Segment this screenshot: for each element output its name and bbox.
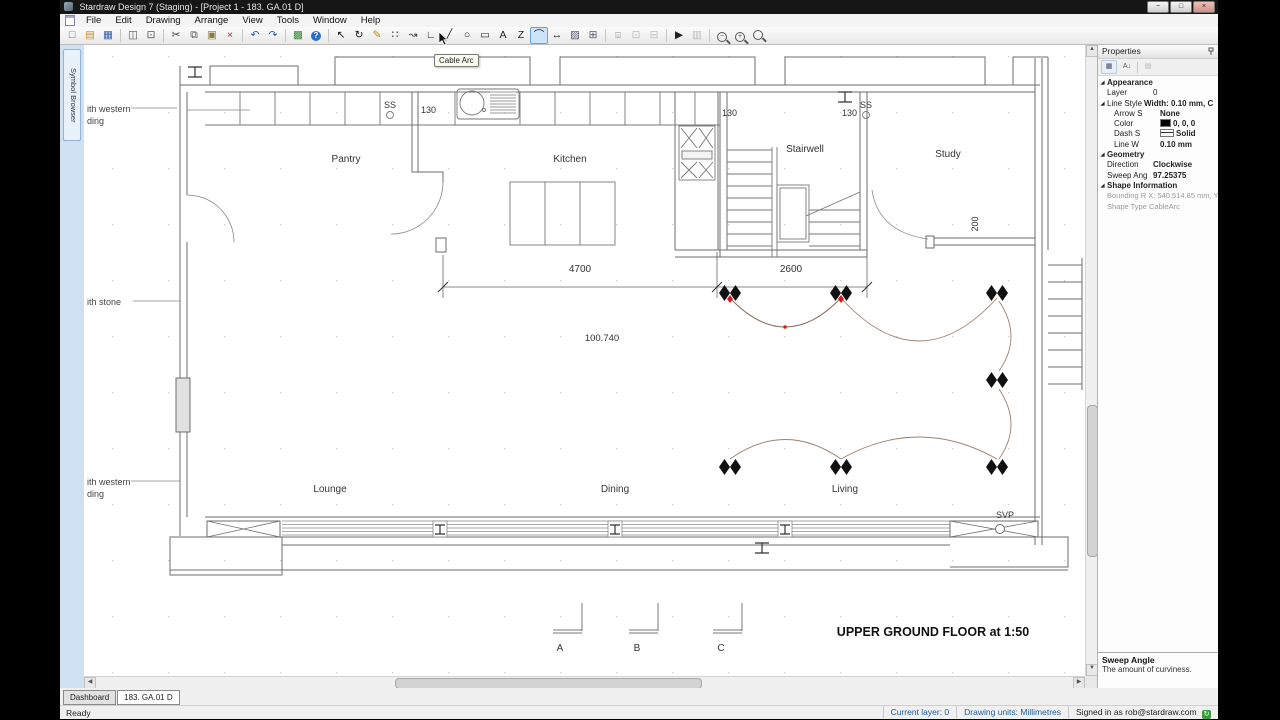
symbol-browser-panel: Symbol Browser (60, 45, 85, 688)
property-row-direction[interactable]: Direction Clockwise (1098, 160, 1218, 170)
toolbar-separator (666, 29, 667, 42)
main-toolbar: □▤▦◫⊡✂⧉▣×↶↷▩?↖↻✎∷↝∟╱○▭AZ⌒↔▨⊞⧈⊡⊟▶▥−+ (60, 27, 1218, 45)
open-icon[interactable]: ▤ (81, 27, 99, 44)
window-title: Stardraw Design 7 (Staging) - [Project 1… (80, 2, 304, 12)
save-icon[interactable]: ▦ (99, 27, 117, 44)
toolbar-separator (605, 29, 606, 42)
property-row-arrow-style[interactable]: Arrow S None (1098, 109, 1218, 119)
copy-icon[interactable]: ⧉ (185, 27, 203, 44)
status-drawing-units[interactable]: Drawing units: Millimetres (956, 706, 1068, 719)
curve-select-icon[interactable]: ↝ (404, 27, 422, 44)
toolbar-separator (163, 29, 164, 42)
properties-grid: ◢ Appearance Layer 0 ◢ Line Style Width:… (1098, 76, 1218, 652)
floor-plan: 4700 2600 100.740 130 130 130 200 Pantry… (84, 45, 1085, 676)
new-icon[interactable]: □ (63, 27, 81, 44)
properties-title: Properties (1102, 46, 1141, 56)
section-b: B (634, 643, 641, 654)
print-icon[interactable]: ◫ (124, 27, 142, 44)
dim-2600: 2600 (780, 264, 803, 275)
property-label: Layer (1098, 88, 1153, 98)
property-label: Direction (1098, 160, 1153, 170)
zoom-window-icon[interactable] (749, 27, 767, 44)
drawing-canvas[interactable]: 4700 2600 100.740 130 130 130 200 Pantry… (84, 45, 1085, 676)
help-icon[interactable]: ? (307, 27, 325, 44)
dash-style-swatch[interactable] (1160, 129, 1174, 137)
app-icon (64, 2, 73, 11)
property-label: Dash S (1098, 129, 1160, 139)
dimension-icon[interactable]: ↔ (548, 27, 566, 44)
collapse-triangle-icon[interactable]: ◢ (1098, 150, 1107, 160)
symbol-grid-icon[interactable]: ⊞ (584, 27, 602, 44)
room-dining: Dining (601, 484, 629, 495)
menu-view[interactable]: View (235, 14, 269, 27)
close-button[interactable]: × (1193, 1, 1215, 13)
status-current-layer[interactable]: Current layer: 0 (883, 706, 957, 719)
format-painter-icon[interactable]: ✎ (368, 27, 386, 44)
note-3-line-2: ding (87, 489, 104, 499)
paste-icon[interactable]: ▣ (203, 27, 221, 44)
property-description-box: Sweep Angle The amount of curviness. (1098, 652, 1218, 688)
signed-in-text: Signed in as rob@stardraw.com (1076, 707, 1197, 717)
document-tab-strip: Dashboard 183. GA.01 D (60, 688, 1218, 705)
cut-icon[interactable]: ✂ (167, 27, 185, 44)
sort-alphabetical-icon[interactable]: A↓ (1119, 60, 1135, 74)
category-label: Shape Information (1107, 181, 1177, 191)
property-label: Line W (1098, 140, 1160, 150)
property-value[interactable]: Solid (1176, 129, 1196, 138)
property-value[interactable]: 0.10 mm (1160, 140, 1218, 150)
toolbar-separator (242, 29, 243, 42)
menu-file[interactable]: File (79, 14, 108, 27)
property-value[interactable]: None (1160, 109, 1218, 119)
toolbar-separator (709, 29, 710, 42)
room-lounge: Lounge (313, 484, 347, 495)
room-stairwell: Stairwell (786, 144, 824, 155)
document-icon[interactable] (65, 15, 75, 26)
title-bar: Stardraw Design 7 (Staging) - [Project 1… (60, 0, 1218, 14)
collapse-triangle-icon[interactable]: ◢ (1098, 181, 1107, 191)
status-signed-in[interactable]: Signed in as rob@stardraw.com ↻ (1068, 706, 1218, 719)
room-pantry: Pantry (332, 154, 361, 165)
property-description-text: The amount of curviness. (1102, 665, 1214, 674)
property-value[interactable]: 0 (1153, 88, 1218, 98)
pin-icon[interactable] (1207, 47, 1215, 56)
ss-label-left: SS (384, 100, 396, 110)
property-pages-icon[interactable]: ▤ (1140, 60, 1156, 74)
property-row-color[interactable]: Color 0, 0, 0 (1098, 119, 1218, 129)
property-label: Sweep Ang (1098, 171, 1153, 181)
sync-status-icon: ↻ (1202, 710, 1211, 719)
zoom-out-icon[interactable]: − (713, 27, 731, 44)
redo-icon[interactable]: ↷ (264, 27, 282, 44)
zoom-in-icon[interactable]: + (731, 27, 749, 44)
scrollbar-corner (1085, 676, 1097, 688)
section-a: A (557, 643, 564, 654)
room-kitchen: Kitchen (553, 154, 586, 165)
plan-title: UPPER GROUND FLOOR at 1:50 (837, 625, 1029, 639)
menu-drawing[interactable]: Drawing (139, 14, 188, 27)
collapse-triangle-icon[interactable]: ◢ (1098, 78, 1107, 88)
note-1-line-2: ding (87, 116, 104, 126)
toolbar-separator (120, 29, 121, 42)
select-icon[interactable]: ↖ (332, 27, 350, 44)
property-label: Line Style (1107, 99, 1144, 109)
property-row-sweep-angle[interactable]: Sweep Ang 97.25375 (1098, 171, 1218, 181)
collapse-triangle-icon[interactable]: ◢ (1098, 99, 1107, 109)
svp-label: SVP (996, 510, 1014, 520)
delete-icon[interactable]: × (221, 27, 239, 44)
cable-arc-icon[interactable]: ⌒ (530, 27, 548, 44)
room-study: Study (935, 149, 961, 160)
grid-dots (84, 45, 1085, 676)
image-icon[interactable]: ▨ (566, 27, 584, 44)
dim-130-b: 130 (722, 108, 737, 118)
status-bar: Ready Current layer: 0 Drawing units: Mi… (60, 705, 1218, 719)
menu-window[interactable]: Window (306, 14, 354, 27)
pick-icon[interactable]: ▶ (670, 27, 688, 44)
property-row-dash-style[interactable]: Dash S Solid (1098, 129, 1218, 139)
undo-icon[interactable]: ↶ (246, 27, 264, 44)
text-icon[interactable]: A (494, 27, 512, 44)
note-2-line-1: ith stone (87, 297, 121, 307)
status-ready: Ready (60, 708, 883, 718)
property-value[interactable]: Width: 0.10 mm, C (1144, 99, 1218, 109)
color-swatch[interactable] (1160, 119, 1171, 127)
ss-label-right: SS (860, 100, 872, 110)
level-label: 100.740 (585, 333, 619, 344)
room-living: Living (832, 484, 858, 495)
toolbar-separator (328, 29, 329, 42)
arc-midpoint-handle[interactable] (783, 325, 787, 329)
property-label: Arrow S (1098, 109, 1160, 119)
section-c: C (717, 643, 724, 654)
dim-130-c: 130 (842, 108, 857, 118)
shape-bounding-info: Bounding R X: 540,514.85 mm, Y: (1098, 191, 1218, 201)
node-edit-icon[interactable]: ∷ (386, 27, 404, 44)
menu-bar-items: FileEditDrawingArrangeViewToolsWindowHel… (79, 14, 387, 27)
category-geometry[interactable]: ◢ Geometry (1098, 150, 1218, 160)
rotate-icon[interactable]: ↻ (350, 27, 368, 44)
property-row-line-style[interactable]: ◢ Line Style Width: 0.10 mm, C (1098, 99, 1218, 109)
symbol-browser-tab[interactable]: Symbol Browser (63, 49, 81, 141)
dim-200: 200 (970, 216, 980, 231)
category-appearance[interactable]: ◢ Appearance (1098, 78, 1218, 88)
category-label: Geometry (1107, 150, 1144, 160)
tab-dashboard[interactable]: Dashboard (63, 690, 116, 705)
menu-tools[interactable]: Tools (270, 14, 306, 27)
polyline-icon[interactable]: Z (512, 27, 530, 44)
dim-130-a: 130 (421, 105, 436, 115)
categorized-view-icon[interactable]: ▦ (1101, 60, 1117, 74)
ellipse-icon[interactable]: ○ (458, 27, 476, 44)
menu-help[interactable]: Help (354, 14, 388, 27)
note-3-line-1: ith western (87, 477, 131, 487)
note-1-line-1: ith western (87, 104, 131, 114)
category-shape-information[interactable]: ◢ Shape Information (1098, 181, 1218, 191)
maximize-button[interactable]: □ (1170, 1, 1192, 13)
tab-drawing[interactable]: 183. GA.01 D (117, 690, 179, 705)
rectangle-icon[interactable]: ▭ (476, 27, 494, 44)
shape-type-info: Shape Type CableArc (1098, 202, 1218, 212)
menu-edit[interactable]: Edit (108, 14, 138, 27)
menu-arrange[interactable]: Arrange (188, 14, 236, 27)
insert-picture-icon[interactable]: ▩ (289, 27, 307, 44)
properties-toolbar: ▦ A↓ ▤ (1098, 59, 1218, 76)
app-window: Stardraw Design 7 (Staging) - [Project 1… (60, 0, 1218, 719)
property-value[interactable]: Clockwise (1153, 160, 1218, 170)
toolbar-separator (285, 29, 286, 42)
regroup-icon[interactable]: ⊟ (645, 27, 663, 44)
property-label: Color (1098, 119, 1160, 129)
minimize-button[interactable]: − (1147, 1, 1169, 13)
property-row-layer[interactable]: Layer 0 (1098, 88, 1218, 98)
property-value[interactable]: 0, 0, 0 (1173, 119, 1195, 128)
group-icon[interactable]: ⧈ (609, 27, 627, 44)
cable-arc-tooltip: Cable Arc (434, 54, 479, 67)
property-description-title: Sweep Angle (1102, 655, 1214, 665)
property-value[interactable]: 97.25375 (1153, 171, 1218, 181)
ungroup-icon[interactable]: ⊡ (627, 27, 645, 44)
category-label: Appearance (1107, 78, 1153, 88)
dim-4700: 4700 (569, 264, 592, 275)
measure-icon[interactable]: ▥ (688, 27, 706, 44)
mouse-cursor (438, 31, 450, 47)
screen: Stardraw Design 7 (Staging) - [Project 1… (0, 0, 1280, 720)
properties-panel: Properties ▦ A↓ ▤ ◢ Appearance Layer 0 ◢… (1097, 45, 1218, 688)
menu-bar: FileEditDrawingArrangeViewToolsWindowHel… (60, 14, 1218, 28)
properties-header: Properties (1098, 45, 1218, 59)
property-row-line-width[interactable]: Line W 0.10 mm (1098, 140, 1218, 150)
print-preview-icon[interactable]: ⊡ (142, 27, 160, 44)
